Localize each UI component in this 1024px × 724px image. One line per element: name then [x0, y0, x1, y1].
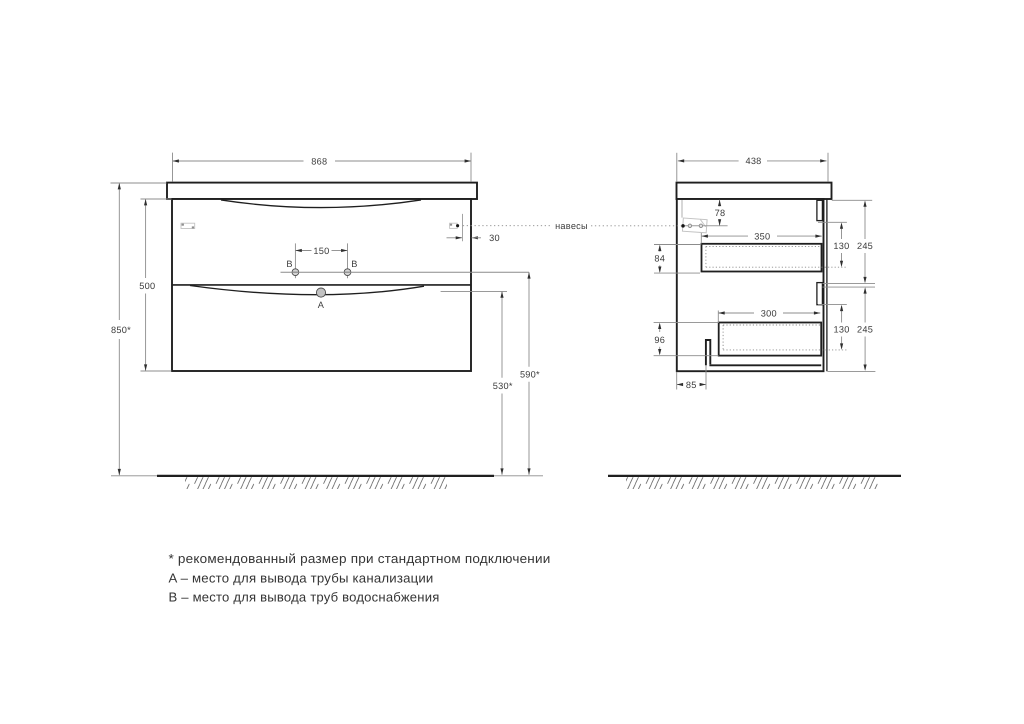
svg-text:84: 84 [654, 254, 665, 264]
svg-text:245: 245 [857, 325, 873, 335]
svg-text:B – место для вывода труб водо: B – место для вывода труб водоснабжения [169, 590, 440, 605]
svg-text:B: B [286, 259, 292, 269]
svg-text:85: 85 [686, 380, 697, 390]
svg-text:навесы: навесы [555, 221, 588, 231]
svg-text:30: 30 [489, 233, 500, 243]
svg-text:500: 500 [139, 281, 155, 291]
svg-text:150: 150 [313, 246, 329, 256]
svg-text:868: 868 [311, 156, 327, 166]
svg-text:850*: 850* [111, 325, 131, 335]
svg-text:438: 438 [745, 156, 761, 166]
svg-text:A: A [318, 300, 325, 310]
svg-text:590*: 590* [520, 370, 540, 380]
svg-text:A – место для вывода трубы кан: A – место для вывода трубы канализации [169, 570, 434, 585]
svg-text:300: 300 [761, 308, 777, 318]
svg-text:78: 78 [715, 208, 726, 218]
svg-text:350: 350 [754, 231, 770, 241]
svg-text:96: 96 [654, 335, 665, 345]
svg-text:530*: 530* [493, 381, 513, 391]
svg-text:* рекомендованный размер при с: * рекомендованный размер при стандартном… [169, 551, 551, 566]
svg-text:130: 130 [834, 325, 850, 335]
svg-text:245: 245 [857, 241, 873, 251]
svg-text:130: 130 [833, 241, 849, 251]
svg-text:B: B [351, 259, 357, 269]
